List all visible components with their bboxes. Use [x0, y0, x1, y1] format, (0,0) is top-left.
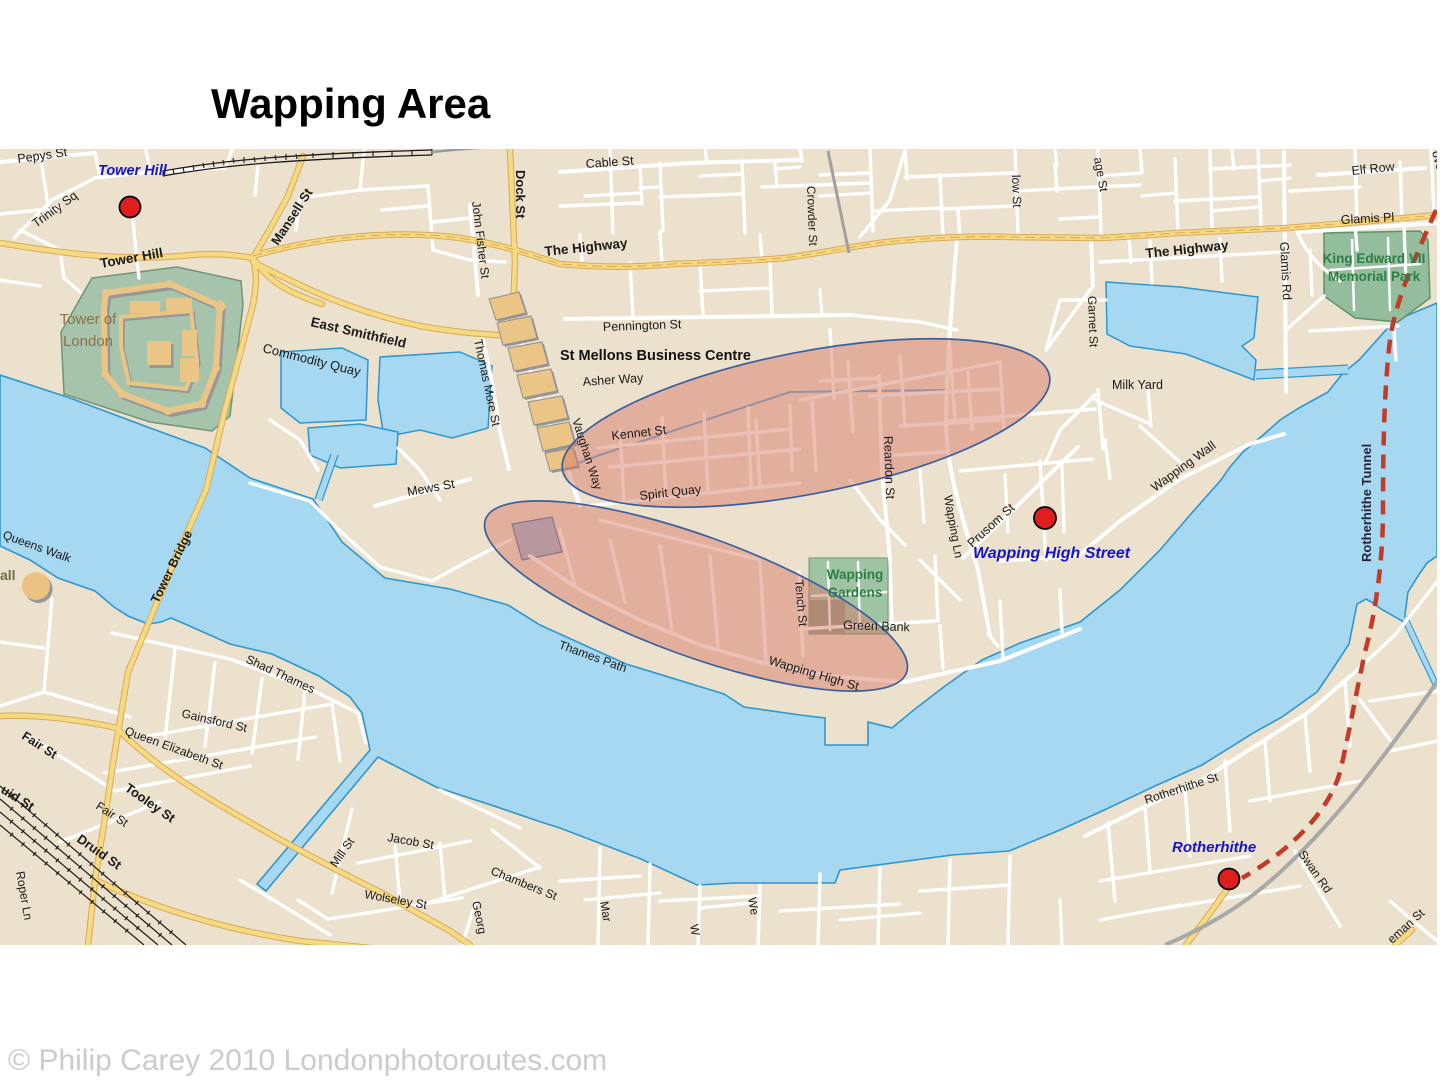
svg-text:Reardon St: Reardon St [881, 436, 897, 500]
svg-text:Wapping: Wapping [827, 567, 884, 582]
svg-text:Milk Yard: Milk Yard [1112, 378, 1163, 392]
svg-text:all: all [0, 567, 16, 583]
svg-text:King Edward VII: King Edward VII [1323, 251, 1426, 266]
svg-text:London: London [63, 333, 113, 350]
svg-text:Pennington St: Pennington St [603, 317, 683, 334]
svg-text:Memorial Park: Memorial Park [1328, 269, 1421, 284]
svg-text:Garnet St: Garnet St [1085, 296, 1101, 348]
svg-text:Crowder St: Crowder St [804, 186, 820, 247]
svg-text:Glamis Pl: Glamis Pl [1340, 210, 1394, 227]
svg-text:Dock St: Dock St [513, 170, 528, 219]
svg-text:Green Bank: Green Bank [843, 618, 911, 634]
svg-text:Tower of: Tower of [60, 311, 118, 328]
svg-text:low St: low St [1009, 175, 1024, 209]
svg-text:Gardens: Gardens [828, 585, 883, 600]
svg-text:Tower Hill: Tower Hill [98, 163, 168, 179]
svg-text:St Mellons Business Centre: St Mellons Business Centre [560, 348, 751, 364]
svg-text:Rotherhithe: Rotherhithe [1172, 839, 1256, 856]
svg-text:Rotherhithe Tunnel: Rotherhithe Tunnel [1359, 444, 1374, 562]
svg-text:Wapping High Street: Wapping High Street [973, 545, 1131, 562]
